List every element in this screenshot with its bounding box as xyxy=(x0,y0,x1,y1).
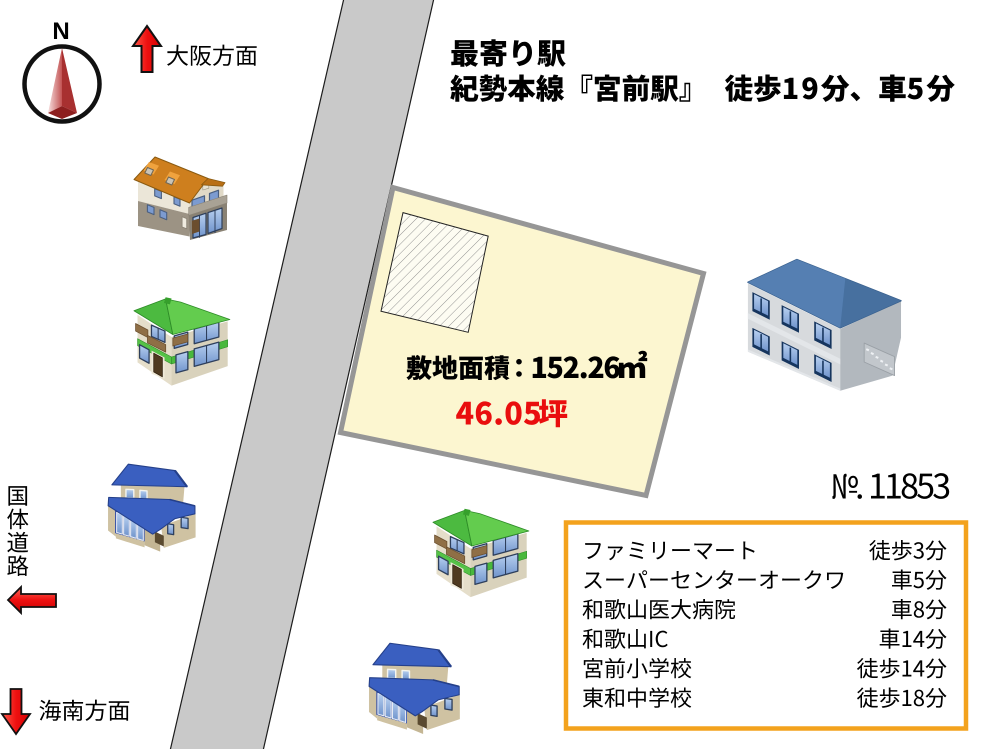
svg-text:N: N xyxy=(52,18,69,45)
